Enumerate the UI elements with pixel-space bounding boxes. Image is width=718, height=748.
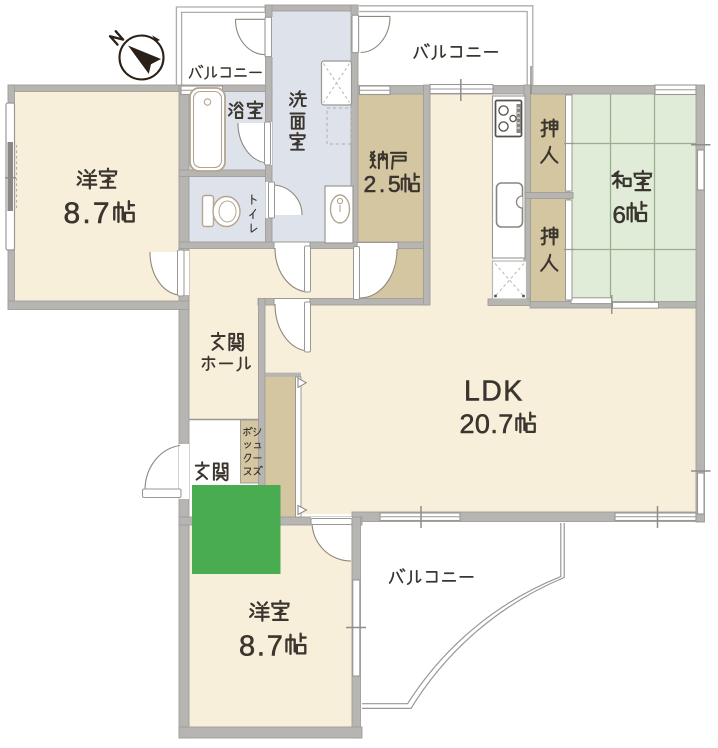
- svg-text:20.7: 20.7: [460, 409, 514, 439]
- svg-text:6: 6: [613, 202, 626, 229]
- svg-text:8.7: 8.7: [239, 631, 285, 663]
- svg-text:8.7: 8.7: [64, 197, 112, 230]
- svg-text:LDK: LDK: [464, 376, 524, 408]
- svg-text:2.5: 2.5: [364, 171, 404, 197]
